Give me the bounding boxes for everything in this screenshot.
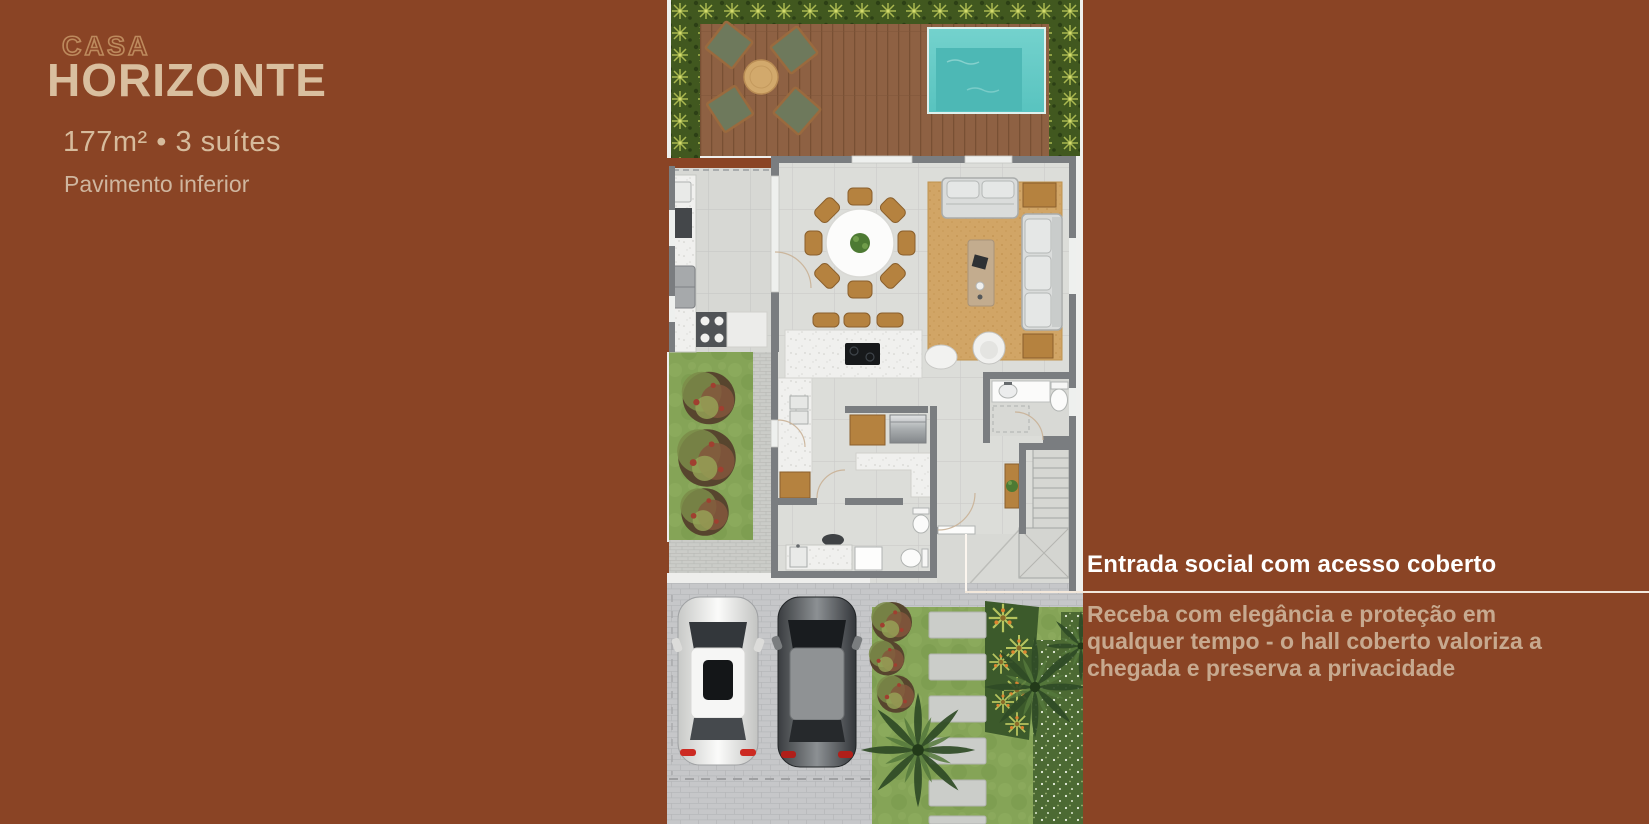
pool (928, 28, 1045, 113)
coffee-table (968, 240, 994, 306)
cooktop (845, 343, 880, 365)
sink (999, 384, 1017, 398)
entry-walkway (872, 583, 1083, 607)
front-yard (667, 573, 1083, 824)
callout-divider-line (965, 591, 1649, 593)
window (669, 210, 675, 246)
shower (855, 547, 882, 570)
project-specs: 177m² • 3 suítes (63, 126, 281, 159)
plan-edge (1076, 156, 1083, 593)
sink (790, 547, 807, 567)
window (1069, 388, 1076, 416)
dining-room (805, 188, 915, 298)
side-table (1023, 183, 1056, 207)
stove (696, 312, 727, 347)
taillight (680, 749, 696, 756)
living-room (925, 178, 1062, 369)
slide: CASA HORIZONTE 177m² • 3 suítes Paviment… (0, 0, 1649, 824)
slider-door (852, 156, 912, 163)
powder-toilet (913, 508, 929, 533)
toilet (901, 549, 928, 567)
armchair (973, 332, 1005, 364)
slider-door (965, 156, 1012, 163)
sofa-right (1022, 214, 1062, 330)
taillight (781, 751, 796, 758)
oven (673, 208, 692, 238)
glass-partition (771, 176, 779, 292)
project-title: HORIZONTE (47, 56, 327, 104)
car-white (671, 597, 765, 765)
deck-terrace (667, 0, 1083, 172)
floor-plan-image (667, 0, 1083, 824)
palm-border-right (1049, 0, 1080, 172)
deck-table (744, 60, 778, 94)
garden-door (771, 420, 778, 447)
bar-stools (813, 313, 903, 327)
cabinet (780, 472, 810, 498)
callout-heading: Entrada social com acesso coberto (1087, 551, 1496, 579)
taillight (740, 749, 756, 756)
floor-plan-svg (667, 0, 1083, 824)
hedge-top (671, 0, 1079, 24)
plant (1006, 480, 1018, 492)
cabinet (850, 415, 885, 445)
callout-body: Receba com elegância e proteção em qualq… (1087, 601, 1599, 682)
toilet (1051, 382, 1069, 411)
kitchen-island (785, 330, 922, 378)
floor-level-label: Pavimento inferior (64, 171, 249, 198)
sink (673, 182, 691, 202)
hedge-left (671, 24, 700, 158)
washer (890, 415, 926, 443)
callout-pointer-line (965, 534, 967, 593)
bathroom (990, 379, 1069, 436)
side-garden (667, 352, 771, 578)
window (1069, 238, 1076, 294)
taillight (838, 751, 853, 758)
window (669, 296, 675, 322)
counter-run (778, 378, 812, 472)
robot-vacuum (822, 534, 844, 546)
sink-basin (790, 411, 808, 424)
side-walk (669, 540, 753, 573)
sink-basin (790, 396, 808, 409)
pouf (925, 345, 957, 369)
sofa-top (942, 178, 1018, 218)
side-table (1023, 334, 1053, 358)
centerpiece-plant (850, 233, 870, 253)
car-dark (771, 597, 863, 767)
